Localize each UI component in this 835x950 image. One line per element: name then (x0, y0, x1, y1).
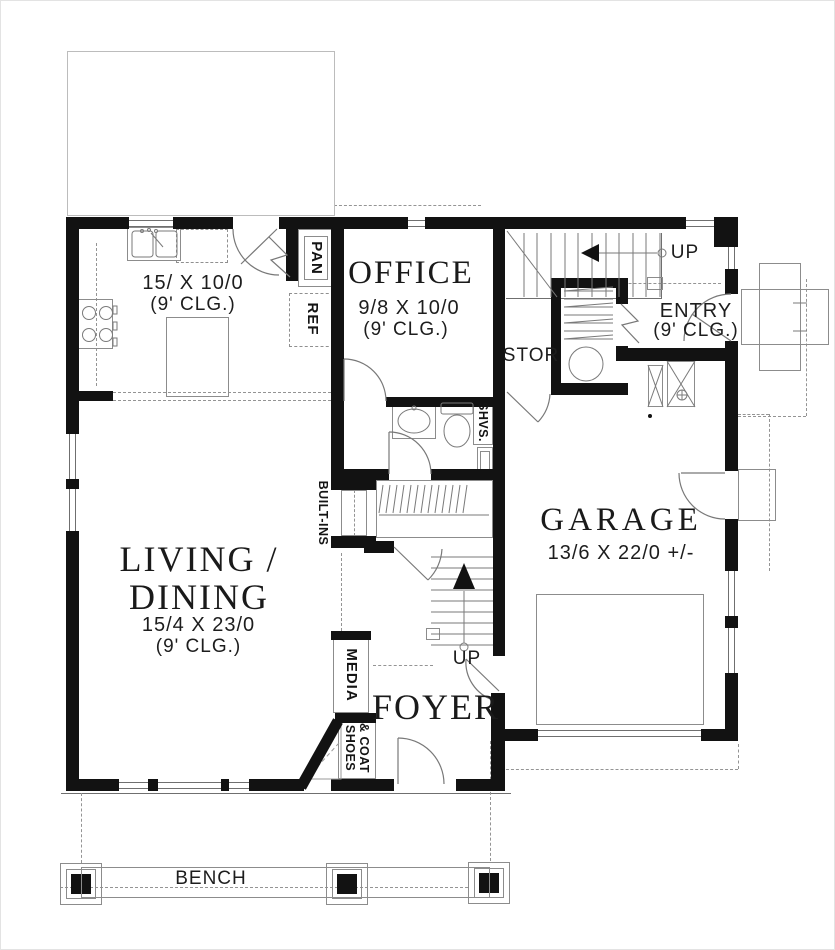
water-heater (569, 347, 603, 381)
garage-hall-door-leaf (507, 392, 538, 422)
kitchen-dimension: 15/ X 10/0 (133, 273, 253, 294)
kitchen-sink (132, 229, 177, 258)
entry-closet-bifold-door (621, 304, 639, 343)
kitchen-back-door-leaf (241, 229, 277, 264)
bath-door-arc (389, 432, 431, 474)
stairs-up-label-upper: UP (665, 243, 705, 263)
toilet (441, 403, 473, 447)
angled-wall (301, 721, 338, 787)
stair-direction-arrow (453, 563, 475, 589)
office-ceiling: (9' CLG.) (346, 320, 466, 340)
foyer-room-name: FOYER (356, 689, 516, 725)
bench-label: BENCH (171, 869, 251, 889)
living-room-name-2: DINING (99, 579, 299, 615)
hall-closet-door-leaf (394, 547, 428, 580)
pantry-bifold-door (269, 237, 290, 277)
upper-staircase (507, 231, 666, 297)
office-room-name: OFFICE (336, 257, 486, 290)
floor-plan: 15/ X 10/0 (9' CLG.) OFFICE 9/8 X 10/0 (… (0, 0, 835, 950)
coat-label: & COAT (354, 713, 374, 783)
living-room-name-1: LIVING / (99, 541, 299, 577)
foyer-front-door-arc (398, 738, 444, 784)
garage-hall-door-arc (538, 394, 550, 422)
entry-room-name: ENTRY (641, 301, 751, 322)
refrigerator-label: REF (302, 274, 322, 364)
built-ins-label: BUILT-INS (313, 468, 333, 558)
bathroom-sink (398, 406, 430, 433)
stove-burners (83, 306, 118, 346)
foyer-staircase (431, 557, 493, 651)
kitchen-back-door-arc (233, 229, 279, 275)
living-dimension: 15/4 X 23/0 (136, 615, 261, 636)
storage-room-name: STOR (501, 346, 561, 366)
office-door-arc (344, 359, 386, 401)
office-dimension: 9/8 X 10/0 (349, 298, 469, 319)
media-label: MEDIA (341, 630, 361, 720)
living-ceiling: (9' CLG.) (136, 637, 261, 657)
closet-rod-hatch (379, 485, 489, 515)
garage-room-name: GARAGE (521, 504, 721, 537)
stair-direction-arrow (581, 244, 599, 262)
stairs-up-label-lower: UP (447, 649, 487, 669)
stoop-steps (793, 303, 807, 331)
shelves-label: SHVS. (473, 377, 493, 467)
kitchen-ceiling: (9' CLG.) (133, 295, 253, 315)
hall-closet-door-arc (428, 549, 442, 580)
garage-dimension: 13/6 X 22/0 +/- (546, 543, 696, 564)
utility-equipment (648, 361, 695, 418)
entry-ceiling: (9' CLG.) (639, 321, 753, 341)
plan-linework (1, 1, 835, 950)
